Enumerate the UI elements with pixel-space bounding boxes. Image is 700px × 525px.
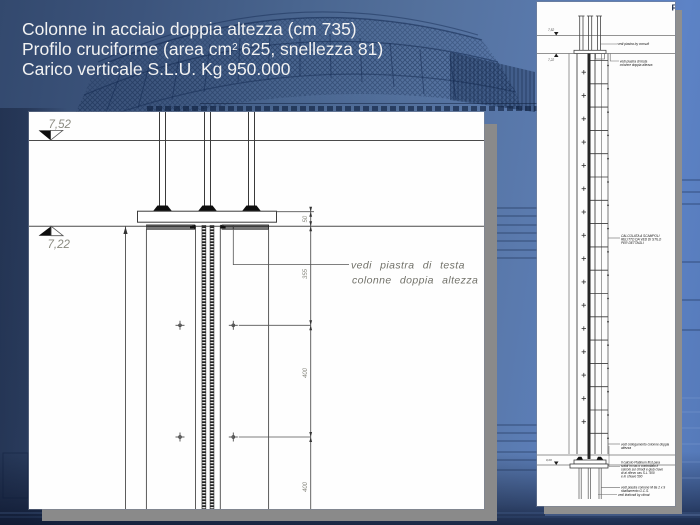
- svg-text:altezza: altezza: [621, 446, 631, 450]
- svg-text:7,52: 7,52: [49, 119, 72, 131]
- svg-text:50: 50: [303, 215, 309, 222]
- svg-text:vedi piastra di testa: vedi piastra di testa: [351, 260, 465, 272]
- svg-text:355: 355: [303, 268, 309, 279]
- svg-text:400: 400: [303, 481, 309, 492]
- svg-text:F: F: [672, 3, 676, 13]
- svg-text:vedi tirafondi by climat: vedi tirafondi by climat: [618, 493, 650, 497]
- svg-text:PER DETTAGLI: PER DETTAGLI: [621, 241, 644, 245]
- svg-text:400: 400: [303, 367, 309, 378]
- svg-text:e in chiave 500: e in chiave 500: [621, 475, 643, 479]
- svg-text:7,52: 7,52: [548, 28, 554, 32]
- svg-text:7,22: 7,22: [548, 58, 554, 62]
- svg-text:0,00: 0,00: [546, 458, 552, 462]
- svg-text:colonne doppia altezza: colonne doppia altezza: [352, 275, 478, 287]
- svg-text:7,22: 7,22: [48, 239, 71, 251]
- svg-text:vedi piastra by consult: vedi piastra by consult: [618, 42, 650, 46]
- svg-text:colonne doppia altezza: colonne doppia altezza: [620, 63, 653, 67]
